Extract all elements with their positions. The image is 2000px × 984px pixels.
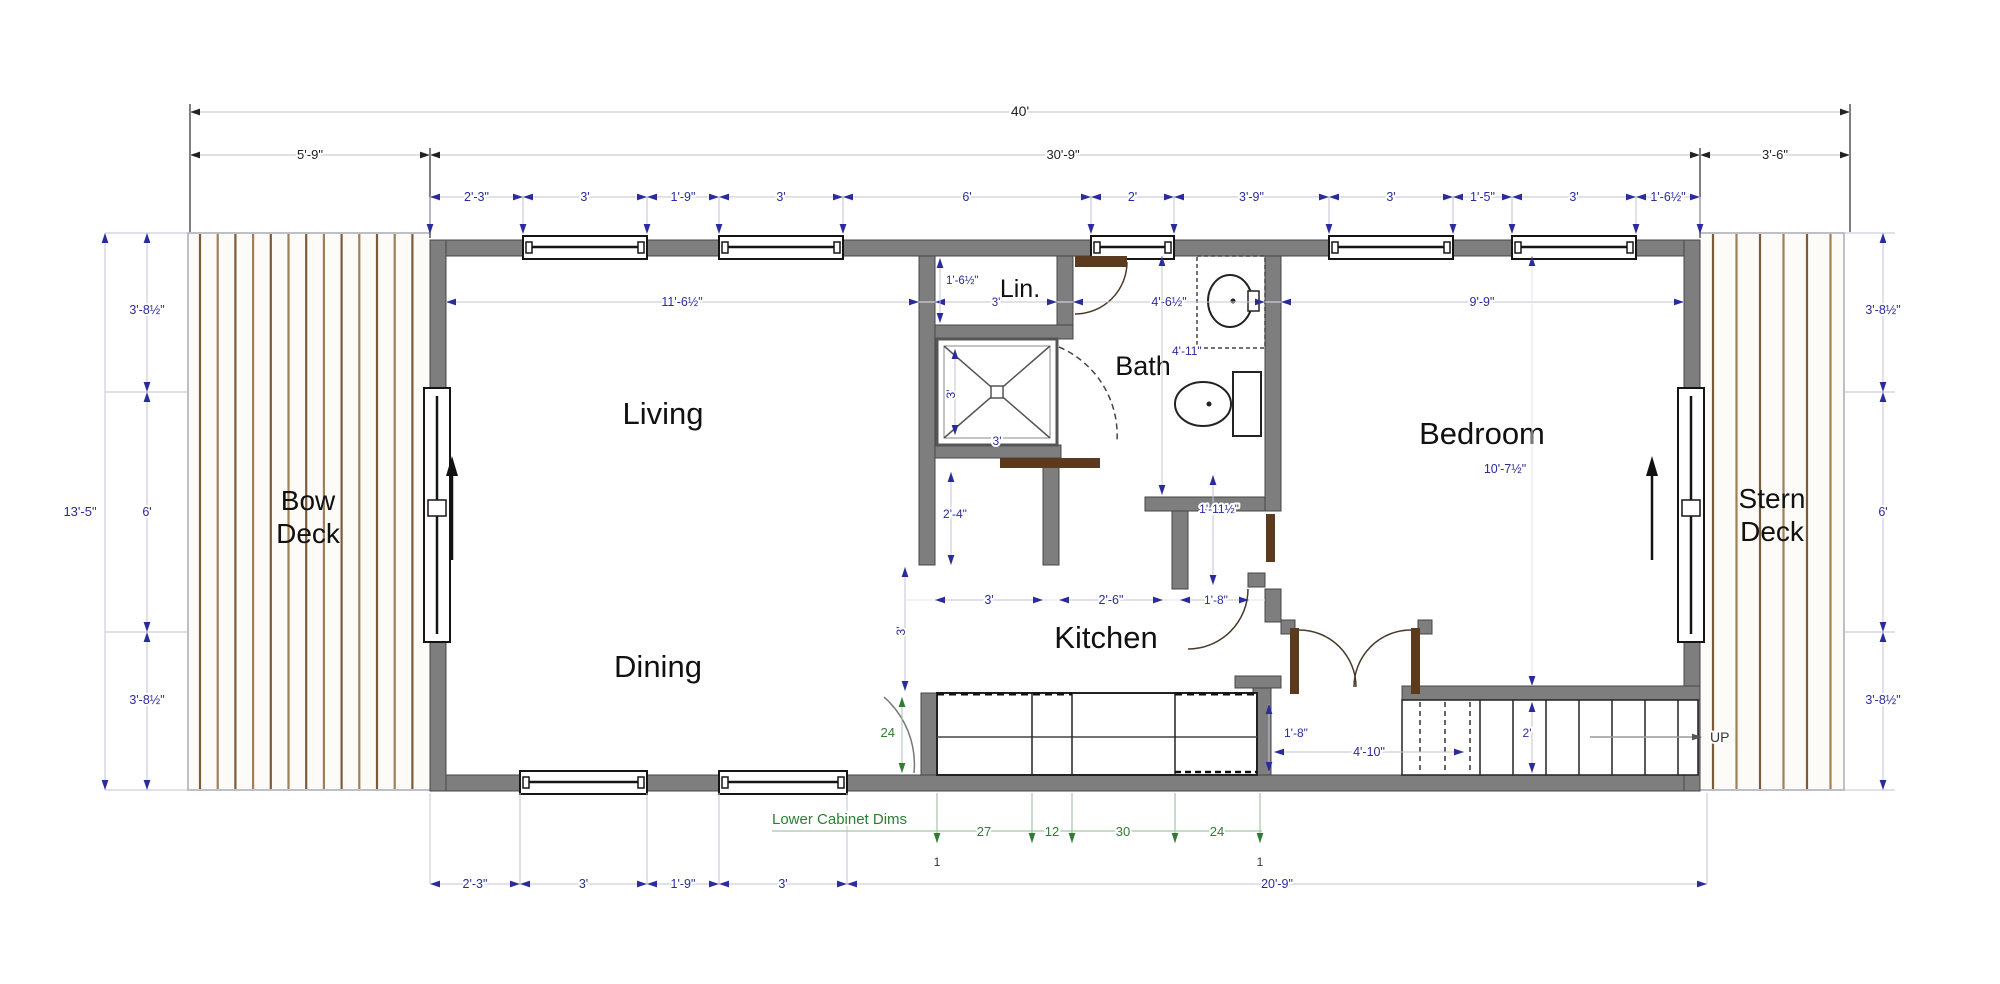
window-nub bbox=[834, 242, 840, 253]
window-dining-2 bbox=[719, 771, 847, 794]
dim-kitchen-pass-label: 3' bbox=[984, 593, 993, 607]
dim-cabinet-depth-label: 24 bbox=[881, 725, 895, 740]
dim-top-window-10-label: 1'-6½" bbox=[1650, 190, 1685, 204]
window-nub bbox=[526, 242, 532, 253]
dim-cabinet-run-1: 12 bbox=[1045, 824, 1059, 839]
dim-shower-width: 3' bbox=[993, 434, 1002, 448]
dim-bottom-window-1-label: 3' bbox=[579, 877, 588, 891]
window-nub bbox=[1627, 242, 1633, 253]
room-label-linen: Lin. bbox=[1000, 275, 1040, 303]
window-nub bbox=[1094, 242, 1100, 253]
wall-bedroom-lower bbox=[1265, 589, 1281, 622]
window-living-1 bbox=[523, 236, 647, 259]
dim-hall-width-label: 2'-4" bbox=[943, 507, 967, 521]
dim-bath-length-label: 4'-11" bbox=[1172, 344, 1202, 358]
slider-nub bbox=[428, 500, 446, 516]
dim-top-window-8-label: 1'-5" bbox=[1470, 190, 1495, 204]
toilet-bowl bbox=[1175, 382, 1231, 426]
stairs-up-label: UP bbox=[1710, 729, 1729, 745]
wall-closet-left bbox=[1172, 511, 1188, 589]
stairs: UP bbox=[1402, 700, 1729, 775]
dim-top-window-4-label: 6' bbox=[962, 190, 971, 204]
wall-closet-stub bbox=[1248, 573, 1265, 587]
dim-linen-depth-label: 1'-6½" bbox=[946, 275, 979, 287]
dim-cabinet-filler-right: 1 bbox=[1257, 855, 1264, 869]
wall-cabinet-end bbox=[921, 693, 937, 775]
dim-stair-width-label: 2' bbox=[1523, 726, 1532, 740]
dim-closet-width-label: 1'-11½" bbox=[1199, 502, 1239, 516]
dim-linen-width-label: 3' bbox=[992, 297, 1001, 309]
dim-top-window-7-label: 3' bbox=[1386, 190, 1395, 204]
toilet-tank bbox=[1233, 372, 1261, 436]
dim-right-1-label: 6' bbox=[1878, 505, 1887, 519]
kitchen-cabinets bbox=[884, 693, 1257, 775]
dim-bottom-window-0-label: 2'-3" bbox=[463, 877, 488, 891]
cabinet-run bbox=[937, 693, 1257, 775]
window-living-2 bbox=[719, 236, 843, 259]
dim-left-1-label: 6' bbox=[142, 505, 151, 519]
bedroom-door-leaf bbox=[1266, 514, 1275, 562]
window-nub bbox=[1332, 242, 1338, 253]
dim-top-window-6-label: 3'-9" bbox=[1239, 190, 1264, 204]
dim-total-length-label: 40' bbox=[1011, 103, 1029, 119]
window-nub bbox=[638, 242, 644, 253]
dim-living-width-label: 11'-6½" bbox=[661, 295, 702, 309]
dim-top-window-2-label: 1'-9" bbox=[671, 190, 696, 204]
dim-bath-width-label: 4'-6½" bbox=[1151, 295, 1186, 309]
window-nub bbox=[1515, 242, 1521, 253]
deck-label-stern-2: Deck bbox=[1740, 516, 1805, 547]
dim-bottom-window-2-label: 1'-9" bbox=[671, 877, 696, 891]
dim-top-window-5-label: 2' bbox=[1128, 190, 1137, 204]
wall-bedroom bbox=[1265, 256, 1281, 511]
slider-nub bbox=[1682, 500, 1700, 516]
window-nub bbox=[722, 242, 728, 253]
bath-door-leaf bbox=[1075, 256, 1127, 267]
dim-kitchen-opening-label: 2'-6" bbox=[1099, 593, 1124, 607]
towel-bar bbox=[1000, 458, 1100, 468]
dim-right-0-label: 3'-8½" bbox=[1865, 303, 1900, 317]
room-label-dining: Dining bbox=[614, 649, 702, 684]
floor-plan-canvas: UPLivingDiningKitchenBathLin.BedroomBowD… bbox=[0, 0, 2000, 984]
window-dining-1 bbox=[520, 771, 647, 794]
window-nub bbox=[1165, 242, 1171, 253]
dim-cabin-length-label: 30'-9" bbox=[1046, 147, 1080, 162]
sink bbox=[1208, 275, 1252, 327]
window-nub bbox=[1444, 242, 1450, 253]
window-bath bbox=[1091, 236, 1174, 259]
dim-entry-width-label: 4'-10" bbox=[1353, 745, 1385, 759]
french-door-leaf-right bbox=[1411, 628, 1420, 694]
room-label-living: Living bbox=[623, 396, 704, 431]
dim-right-2-label: 3'-8½" bbox=[1865, 693, 1900, 707]
dim-top-window-9-label: 3' bbox=[1569, 190, 1578, 204]
dim-bottom-overall-label: 20'-9" bbox=[1261, 877, 1293, 891]
dim-bedroom-length-label: 10'-7½" bbox=[1484, 462, 1526, 476]
cabinet-dims-title: Lower Cabinet Dims bbox=[772, 811, 907, 828]
dim-bottom-window-3-label: 3' bbox=[778, 877, 787, 891]
dim-stern-length-label: 3'-6" bbox=[1762, 147, 1788, 162]
dim-bow-length-label: 5'-9" bbox=[297, 147, 323, 162]
dim-top-window-1-label: 3' bbox=[580, 190, 589, 204]
dim-beam-label: 13'-5" bbox=[63, 504, 97, 519]
deck-label-stern-1: Stern bbox=[1739, 483, 1806, 514]
dim-dining-pass-label: 3' bbox=[894, 627, 908, 636]
dim-bedroom-width-label: 9'-9" bbox=[1470, 295, 1495, 309]
dim-entry-offset-label: 1'-8" bbox=[1284, 726, 1308, 740]
window-nub bbox=[722, 777, 728, 788]
window-bedroom-1 bbox=[1329, 236, 1453, 259]
room-label-bedroom: Bedroom bbox=[1419, 416, 1545, 451]
wall-door-jamb bbox=[1418, 620, 1432, 634]
room-label-kitchen: Kitchen bbox=[1054, 620, 1157, 655]
sliding-door-bow bbox=[424, 388, 450, 642]
floor-plan-page: UPLivingDiningKitchenBathLin.BedroomBowD… bbox=[0, 0, 2000, 984]
wall-kitchen-bath bbox=[1043, 458, 1059, 565]
dim-top-window-3-label: 3' bbox=[776, 190, 785, 204]
dim-cabinet-run-3: 24 bbox=[1210, 824, 1224, 839]
wall-linen-bottom bbox=[935, 325, 1073, 339]
window-nub bbox=[523, 777, 529, 788]
shower-drain bbox=[991, 386, 1003, 398]
wall-entry-jog bbox=[1235, 676, 1281, 688]
dim-top-window-0-label: 2'-3" bbox=[464, 190, 489, 204]
dim-left-2-label: 3'-8½" bbox=[129, 693, 164, 707]
dim-left-0-label: 3'-8½" bbox=[129, 303, 164, 317]
sliding-door-stern bbox=[1678, 388, 1704, 642]
dim-cabinet-run-2: 30 bbox=[1116, 824, 1130, 839]
sink-drain bbox=[1231, 299, 1236, 304]
window-nub bbox=[838, 777, 844, 788]
dim-closet-door-label: 1'-8" bbox=[1204, 593, 1228, 607]
dim-shower-height-label: 3' bbox=[944, 390, 958, 399]
toilet-drain bbox=[1207, 402, 1212, 407]
dim-cabinet-run-0: 27 bbox=[977, 824, 991, 839]
window-nub bbox=[638, 777, 644, 788]
french-door-leaf-left bbox=[1290, 628, 1299, 694]
deck-label-bow-1: Bow bbox=[281, 485, 336, 516]
dim-cabinet-filler-left: 1 bbox=[934, 855, 941, 869]
deck-label-bow-2: Deck bbox=[276, 518, 341, 549]
wall-stair-top bbox=[1402, 686, 1700, 700]
window-bedroom-2 bbox=[1512, 236, 1636, 259]
